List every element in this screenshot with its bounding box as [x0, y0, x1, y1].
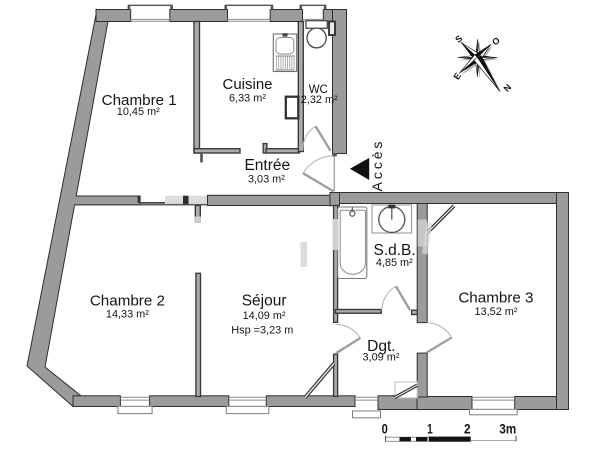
svg-text:10,45 m²: 10,45 m²	[117, 106, 160, 118]
svg-text:Chambre 2: Chambre 2	[90, 292, 165, 309]
svg-text:13,52 m²: 13,52 m²	[475, 306, 518, 318]
svg-text:Accès: Accès	[369, 139, 385, 192]
svg-text:2: 2	[464, 421, 471, 437]
svg-text:Entrée: Entrée	[244, 157, 290, 174]
svg-text:N: N	[502, 82, 514, 94]
svg-text:1: 1	[427, 421, 433, 437]
svg-text:14,09 m²: 14,09 m²	[243, 310, 286, 322]
svg-text:2,32 m²: 2,32 m²	[301, 94, 338, 106]
svg-text:S: S	[453, 33, 464, 45]
svg-text:Séjour: Séjour	[242, 293, 287, 310]
svg-text:14,33 m²: 14,33 m²	[106, 308, 149, 320]
svg-text:3,09 m²: 3,09 m²	[363, 351, 400, 363]
svg-text:Hsp =3,23 m: Hsp =3,23 m	[231, 325, 293, 337]
svg-text:6,33 m²: 6,33 m²	[229, 93, 266, 105]
svg-text:3,03 m²: 3,03 m²	[248, 174, 285, 186]
svg-text:4,85 m²: 4,85 m²	[376, 257, 413, 269]
svg-text:O: O	[490, 35, 501, 47]
svg-text:Chambre 3: Chambre 3	[458, 289, 533, 306]
svg-text:3m: 3m	[499, 421, 516, 437]
svg-text:E: E	[451, 71, 463, 82]
svg-text:0: 0	[382, 421, 388, 437]
svg-text:Cuisine: Cuisine	[222, 76, 272, 93]
